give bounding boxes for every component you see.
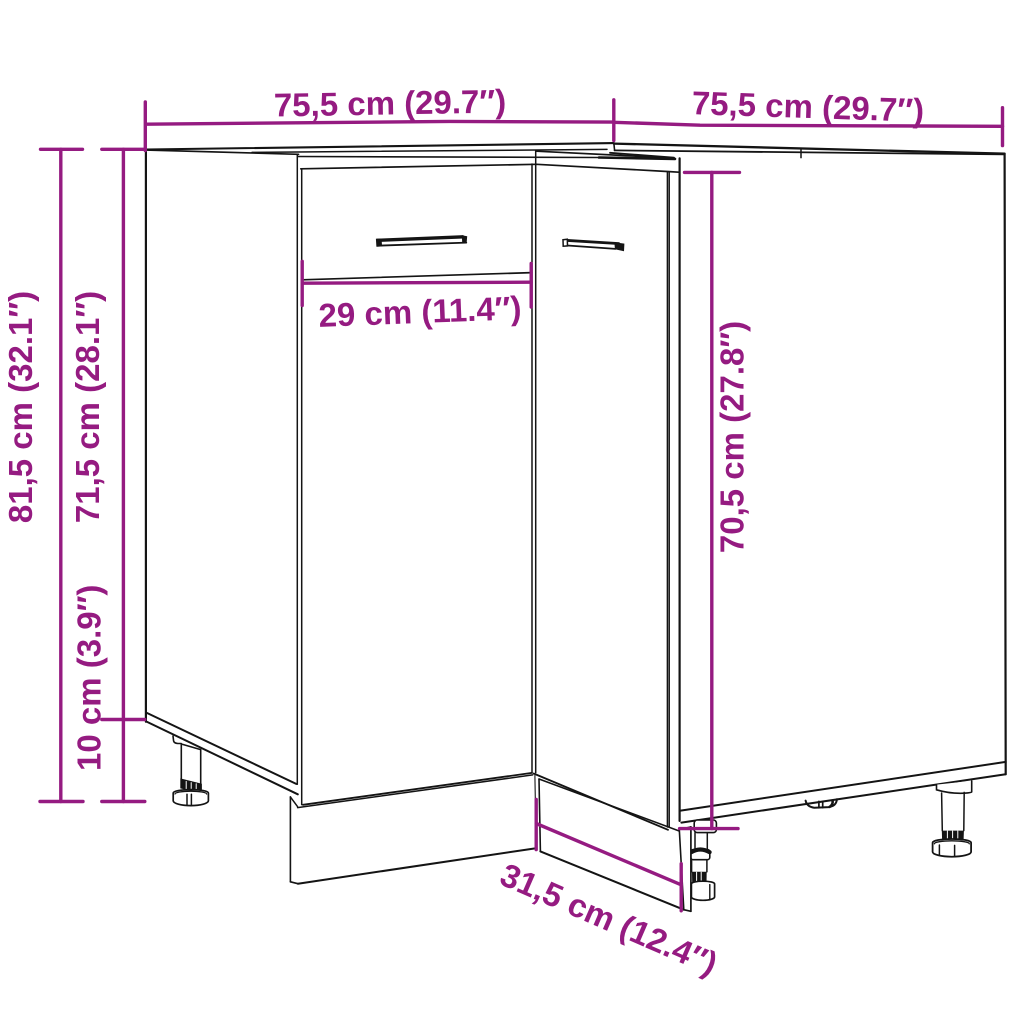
svg-text:81,5 cm (32.1″): 81,5 cm (32.1″) bbox=[2, 291, 39, 523]
svg-text:71,5 cm (28.1″): 71,5 cm (28.1″) bbox=[69, 291, 106, 523]
svg-text:10 cm (3.9″): 10 cm (3.9″) bbox=[71, 585, 108, 771]
svg-text:70,5 cm (27.8″): 70,5 cm (27.8″) bbox=[714, 321, 751, 553]
svg-text:75,5 cm (29.7″): 75,5 cm (29.7″) bbox=[691, 84, 924, 129]
svg-text:29 cm (11.4″): 29 cm (11.4″) bbox=[318, 289, 522, 334]
svg-text:75,5 cm (29.7″): 75,5 cm (29.7″) bbox=[274, 82, 507, 123]
